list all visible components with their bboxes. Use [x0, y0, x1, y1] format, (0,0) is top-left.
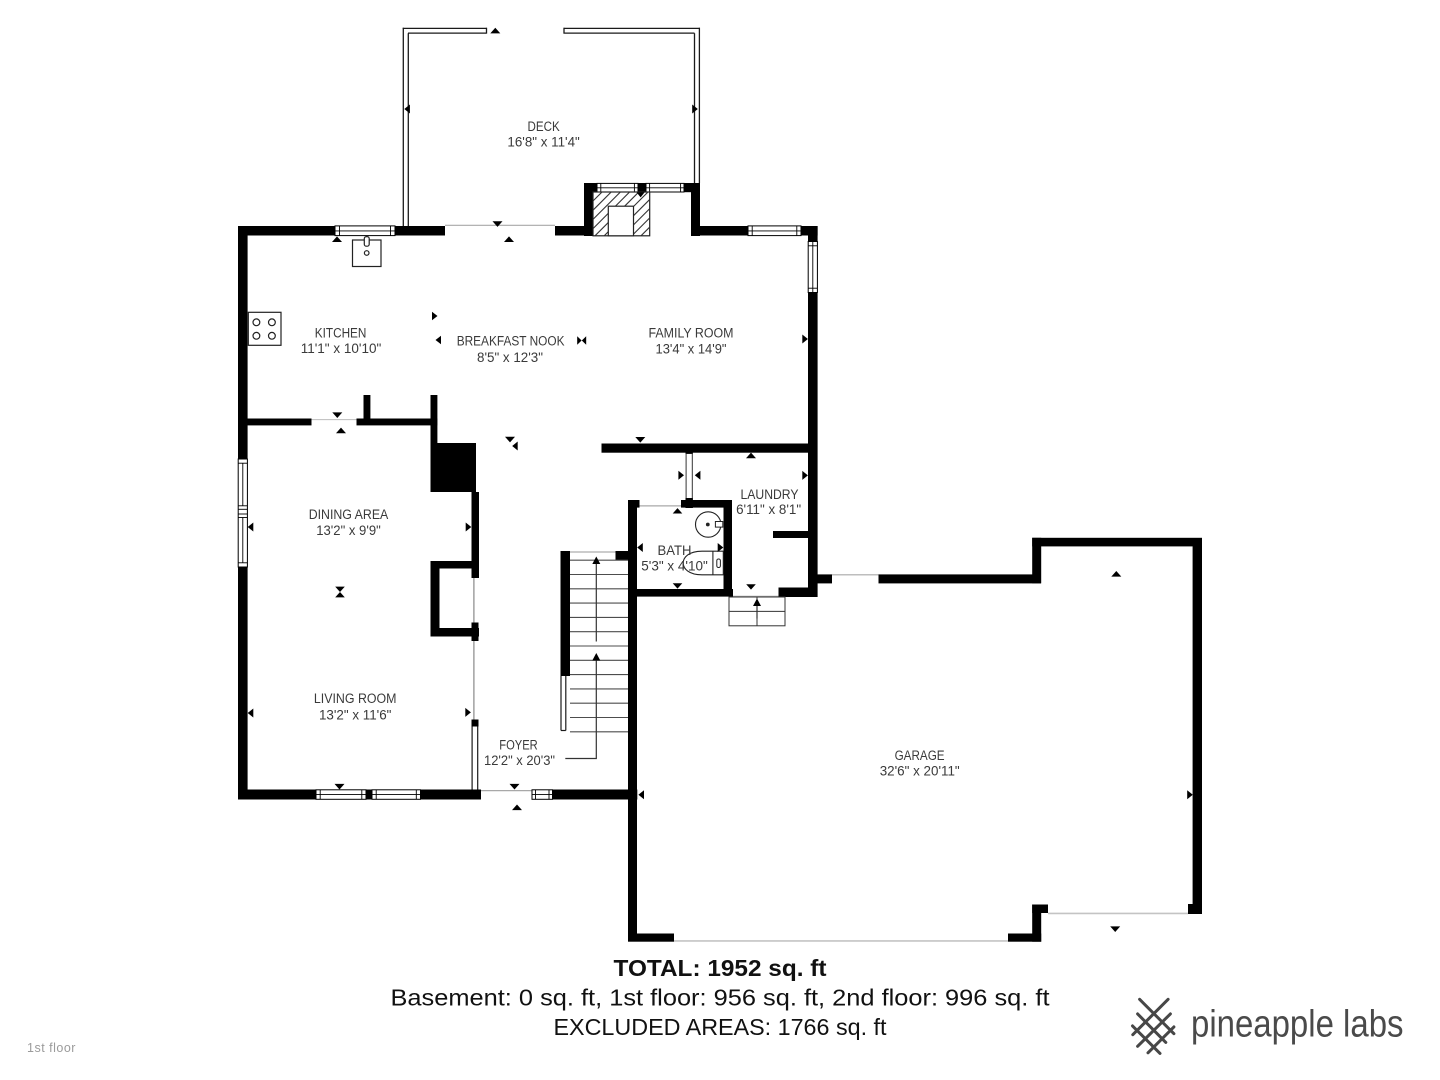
svg-text:DINING AREA: DINING AREA: [309, 507, 389, 523]
svg-text:TOTAL: 1952 sq. ft: TOTAL: 1952 sq. ft: [614, 955, 827, 981]
svg-text:13'4" x 14'9": 13'4" x 14'9": [656, 341, 727, 356]
svg-text:5'3" x 4'10": 5'3" x 4'10": [641, 559, 708, 574]
svg-text:GARAGE: GARAGE: [895, 748, 945, 764]
svg-text:16'8" x 11'4": 16'8" x 11'4": [507, 135, 579, 150]
svg-text:13'2" x 9'9": 13'2" x 9'9": [316, 523, 381, 538]
svg-text:FAMILY ROOM: FAMILY ROOM: [649, 325, 734, 341]
svg-text:11'1" x 10'10": 11'1" x 10'10": [301, 341, 382, 356]
svg-text:DECK: DECK: [528, 119, 561, 135]
svg-text:12'2" x 20'3": 12'2" x 20'3": [484, 753, 555, 768]
svg-text:BATH: BATH: [658, 543, 692, 559]
svg-text:LIVING ROOM: LIVING ROOM: [314, 691, 397, 707]
svg-text:pineapple labs: pineapple labs: [1191, 1004, 1404, 1046]
svg-text:FOYER: FOYER: [499, 737, 538, 753]
svg-text:1st floor: 1st floor: [27, 1041, 76, 1055]
svg-text:13'2" x 11'6": 13'2" x 11'6": [319, 707, 392, 722]
svg-text:32'6" x 20'11": 32'6" x 20'11": [880, 764, 960, 779]
svg-text:EXCLUDED AREAS: 1766 sq. ft: EXCLUDED AREAS: 1766 sq. ft: [554, 1014, 887, 1040]
svg-text:Basement: 0 sq. ft, 1st floor:: Basement: 0 sq. ft, 1st floor: 956 sq. f…: [391, 985, 1051, 1011]
svg-text:BREAKFAST NOOK: BREAKFAST NOOK: [457, 333, 565, 349]
svg-text:LAUNDRY: LAUNDRY: [741, 487, 799, 503]
svg-text:8'5" x 12'3": 8'5" x 12'3": [477, 350, 543, 365]
svg-text:KITCHEN: KITCHEN: [315, 326, 367, 342]
svg-text:6'11" x 8'1": 6'11" x 8'1": [736, 502, 801, 517]
